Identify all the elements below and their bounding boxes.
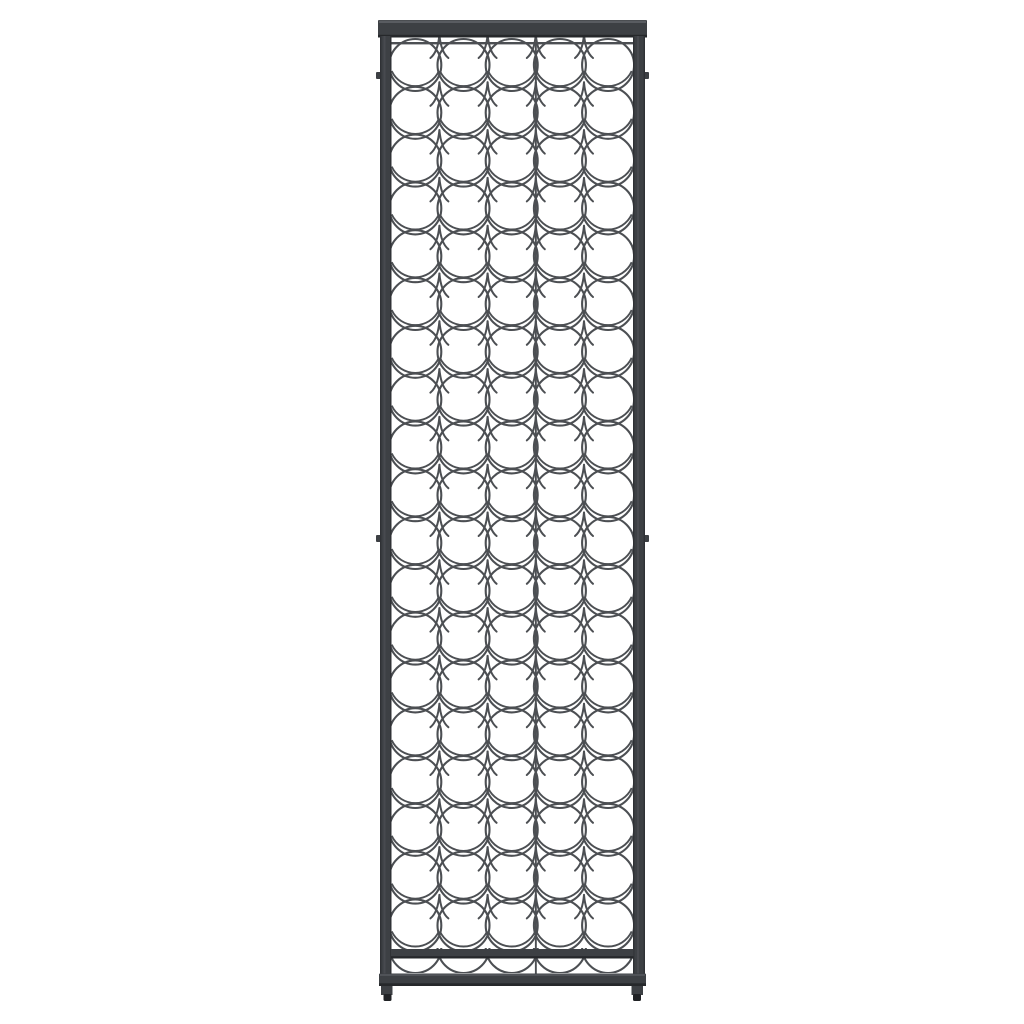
white-background [0,0,1024,1024]
left-foot [384,994,392,1001]
right-post-highlight [637,36,639,986]
right-post-outer-edge [644,36,645,986]
right-leg [632,986,644,995]
left-post-inner-edge [390,36,391,986]
right-post-inner-edge [633,36,634,986]
top-bar-highlight [379,21,646,24]
top-bar-shadow [378,35,647,38]
bottom-rail-highlight [380,974,645,976]
right-foot [633,994,641,1001]
product-photo-canvas [0,0,1024,1024]
left-post-highlight [384,36,386,986]
bottom-crossbar-shadow [391,956,634,958]
bottom-rail-shadow [379,983,646,986]
left-post [380,36,392,986]
center-divider-wire [535,42,537,974]
left-leg [381,986,393,995]
left-post-outer-edge [380,36,381,986]
wine-rack-product-photo [0,0,1024,1024]
